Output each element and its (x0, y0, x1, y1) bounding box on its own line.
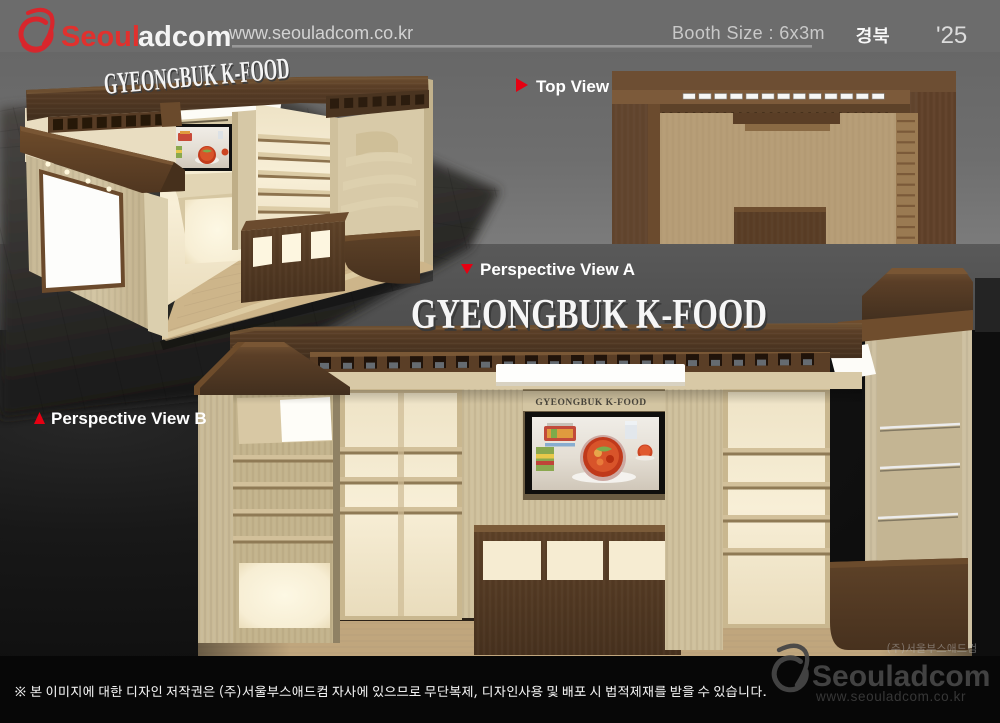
svg-text:'25: '25 (936, 22, 967, 49)
svg-text:GYEONGBUK K-FOOD: GYEONGBUK K-FOOD (411, 292, 767, 338)
svg-text:www.seouladcom.co.kr: www.seouladcom.co.kr (815, 689, 966, 704)
svg-text:www.seouladcom.co.kr: www.seouladcom.co.kr (228, 23, 413, 43)
svg-text:Perspective View B: Perspective View B (51, 409, 207, 428)
svg-text:adcom: adcom (138, 21, 231, 53)
svg-text:Booth Size : 6x3m: Booth Size : 6x3m (672, 23, 825, 43)
svg-text:Seoul: Seoul (61, 21, 140, 53)
svg-text:Top View: Top View (536, 77, 610, 96)
svg-text:Perspective View A: Perspective View A (480, 260, 635, 279)
